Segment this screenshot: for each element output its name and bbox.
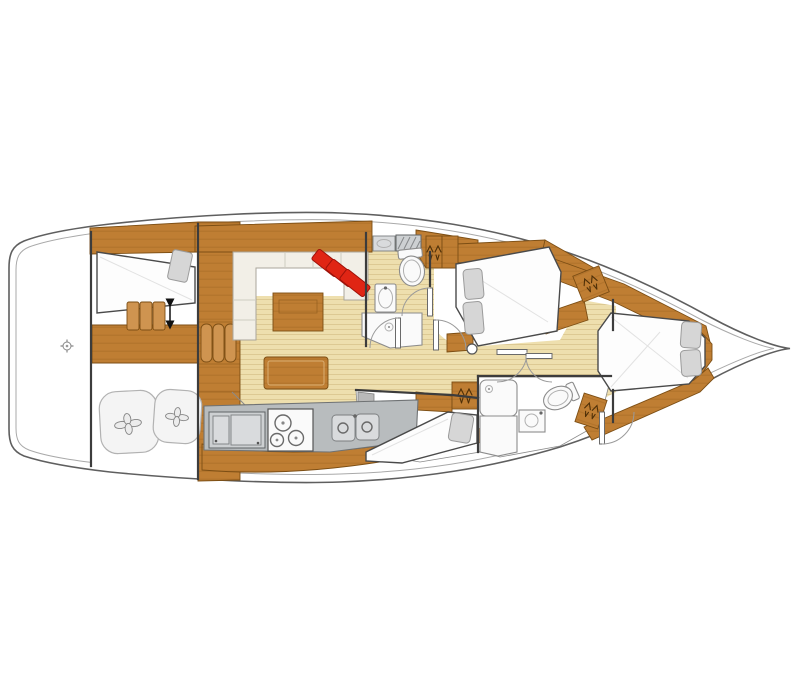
- aft-cabin-top-locker: [90, 222, 198, 254]
- bow-cabin-door-leaf: [600, 412, 605, 444]
- refrigerator-unit: [209, 412, 265, 448]
- bow-pillow-1: [680, 321, 702, 348]
- salon-top-locker: [195, 221, 372, 252]
- shower: [480, 380, 517, 416]
- settee-fold-module: [273, 293, 323, 331]
- port-pillow-2: [463, 301, 485, 335]
- faucet-icon: [353, 414, 357, 418]
- aft-mid-band: [92, 325, 198, 363]
- port-cabin-door-leaf: [434, 320, 439, 350]
- corridor-door-leaf: [497, 350, 527, 355]
- starboard-pillow: [448, 412, 475, 443]
- dining-table: [264, 357, 328, 389]
- stove: [268, 409, 313, 451]
- bow-pillow-2: [680, 349, 702, 376]
- door-knob: [467, 344, 477, 354]
- drain-icon: [488, 388, 490, 390]
- faucet-icon: [384, 286, 387, 289]
- port-pillow-1: [463, 268, 485, 300]
- faucet-icon: [539, 411, 542, 414]
- boat-floor-plan: [0, 0, 800, 700]
- washbasin: [375, 284, 396, 312]
- aft-head-door-leaf: [428, 288, 433, 316]
- port-cabin: [456, 247, 561, 346]
- head-counter: [480, 416, 517, 456]
- washbasin: [519, 410, 545, 432]
- rounded-slats: [201, 324, 236, 362]
- forward-head-door-leaf: [526, 354, 552, 359]
- floor-plan-canvas: [0, 0, 800, 700]
- drain-icon: [388, 326, 390, 328]
- shower-door-leaf: [396, 318, 401, 348]
- companionway-steps: [127, 302, 165, 330]
